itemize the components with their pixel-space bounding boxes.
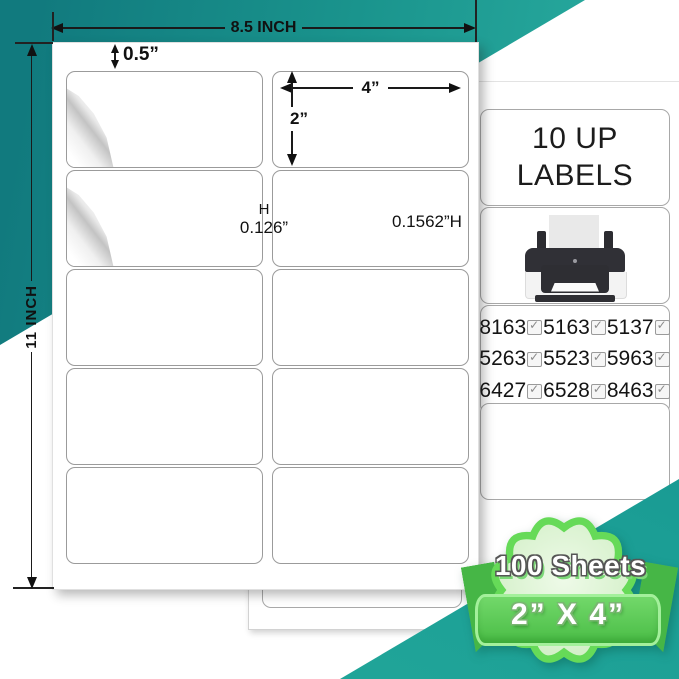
checkbox-checked-icon (527, 352, 542, 367)
printer-paper (549, 215, 599, 251)
checkbox-checked-icon (591, 320, 606, 335)
avery-number: 8463 (607, 379, 654, 403)
label-grid (66, 71, 469, 564)
avery-number: 5963 (607, 347, 654, 371)
dimension-sheet-height: 11 INCH (23, 44, 40, 589)
arrow-up-icon (111, 44, 119, 53)
panel-title-line2: LABELS (517, 158, 633, 195)
blank-label (272, 368, 469, 465)
gap-letter: H (212, 201, 316, 218)
blank-label (66, 269, 263, 366)
panel-title-line1: 10 UP (517, 121, 633, 158)
sheet-width-label: 8.5 INCH (231, 19, 297, 37)
checkbox-checked-icon (591, 352, 606, 367)
panel-cell-printer (480, 207, 670, 304)
dimension-label-width: 4” (280, 80, 461, 96)
arrow-down-icon (27, 577, 37, 589)
panel-title: 10 UP LABELS (517, 121, 633, 194)
printer-led (573, 259, 577, 263)
blank-label (66, 368, 263, 465)
dimension-line (31, 56, 33, 281)
panel-cell-empty (480, 403, 670, 500)
dimension-line (114, 53, 116, 60)
blank-label (272, 269, 469, 366)
checkbox-checked-icon (527, 320, 542, 335)
peeling-label (66, 71, 263, 168)
gap-value: 0.126” (212, 218, 316, 238)
label-width-label: 4” (362, 78, 380, 98)
scallop-seal-icon (482, 508, 646, 672)
avery-number: 5137 (607, 316, 654, 340)
dimension-label-height: 2” (285, 71, 299, 166)
avery-number: 5163 (543, 316, 590, 340)
arrow-down-icon (111, 60, 119, 69)
checkbox-checked-icon (591, 384, 606, 399)
sheet-count-label: 100 Sheets (462, 550, 679, 582)
label-sheet-main (52, 42, 479, 590)
checkbox-checked-icon (527, 384, 542, 399)
dimension-line (302, 27, 464, 29)
blank-label (272, 467, 469, 564)
printer-icon (525, 215, 625, 303)
top-margin-label: 0.5” (123, 44, 159, 66)
arrow-up-icon (27, 44, 37, 56)
label-size-label: 2” X 4” (475, 598, 661, 632)
avery-number: 8163 (479, 316, 526, 340)
dimension-line (291, 131, 293, 155)
avery-number: 6427 (479, 379, 526, 403)
dimension-line (291, 83, 293, 107)
arrow-down-icon (287, 154, 297, 166)
extension-line (475, 0, 477, 42)
dimension-line (63, 27, 225, 29)
avery-number: 5523 (543, 347, 590, 371)
sheet-height-label: 11 INCH (23, 285, 40, 349)
avery-number: 6528 (543, 379, 590, 403)
extension-line (52, 12, 54, 41)
checkbox-checked-icon (655, 384, 670, 399)
compat-row: 6427 6528 8463 (479, 379, 670, 403)
panel-cell-title: 10 UP LABELS (480, 109, 670, 206)
checkbox-checked-icon (655, 320, 670, 335)
arrow-up-icon (287, 71, 297, 83)
label-height-label: 2” (290, 109, 308, 129)
sheet-count-badge: 100 Sheets 2” X 4” (462, 506, 679, 679)
compat-row: 5263 5523 5963 (479, 347, 670, 371)
row-gap-label: 0.1562”H (392, 212, 462, 232)
dimension-line (388, 87, 449, 89)
panel-cell-compat: 8163 5163 5137 5263 5523 5963 6427 6528 … (480, 305, 670, 414)
product-image: { "dimensions": { "sheet_width": "8.5 IN… (0, 0, 679, 679)
printer-base (535, 295, 615, 302)
dimension-line (31, 352, 33, 577)
dimension-line (292, 87, 353, 89)
dimension-top-margin (109, 44, 121, 69)
column-gap-label: H 0.126” (212, 201, 316, 238)
arrow-right-icon (449, 83, 461, 93)
avery-number: 5263 (479, 347, 526, 371)
checkbox-checked-icon (655, 352, 670, 367)
printer-tray (551, 283, 599, 292)
compat-row: 8163 5163 5137 (479, 316, 670, 340)
blank-label (66, 467, 263, 564)
dimension-sheet-width: 8.5 INCH (51, 19, 476, 37)
